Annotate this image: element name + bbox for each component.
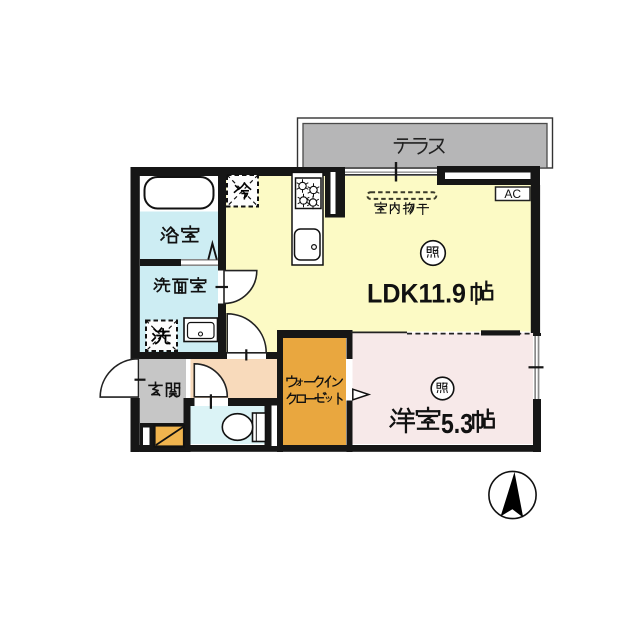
- svg-text:LDK11.9: LDK11.9: [367, 279, 466, 309]
- svg-text:AC: AC: [504, 187, 521, 201]
- svg-text:5.3: 5.3: [441, 408, 473, 439]
